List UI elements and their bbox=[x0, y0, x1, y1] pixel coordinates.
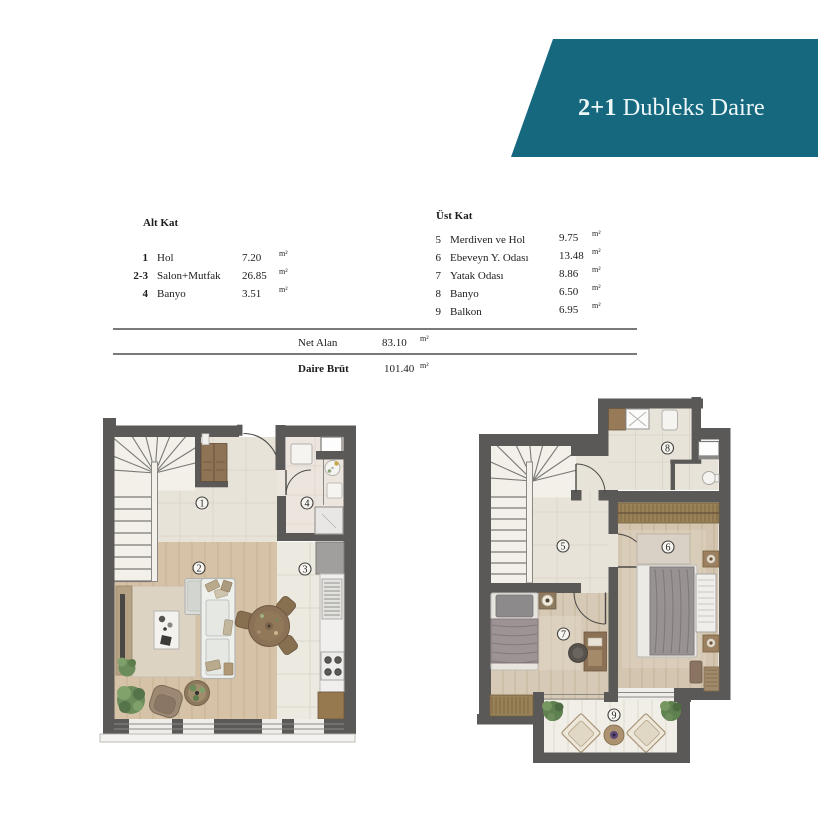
svg-text:1: 1 bbox=[200, 498, 205, 509]
svg-text:Üst Kat: Üst Kat bbox=[436, 209, 473, 222]
svg-text:5: 5 bbox=[436, 234, 442, 246]
svg-text:m²: m² bbox=[279, 267, 288, 276]
svg-text:m²: m² bbox=[592, 229, 601, 238]
svg-text:Daire Brüt: Daire Brüt bbox=[298, 363, 349, 375]
svg-text:Yatak Odası: Yatak Odası bbox=[450, 270, 504, 282]
svg-text:m²: m² bbox=[592, 301, 601, 310]
svg-text:8: 8 bbox=[436, 288, 442, 300]
svg-text:6: 6 bbox=[666, 542, 671, 553]
svg-text:3: 3 bbox=[303, 564, 308, 575]
svg-text:Banyo: Banyo bbox=[157, 288, 186, 300]
svg-text:m²: m² bbox=[592, 283, 601, 292]
svg-text:8.86: 8.86 bbox=[559, 268, 579, 280]
svg-text:Salon+Mutfak: Salon+Mutfak bbox=[157, 270, 221, 282]
svg-text:m²: m² bbox=[420, 361, 429, 370]
svg-text:Net Alan: Net Alan bbox=[298, 337, 338, 349]
svg-text:5: 5 bbox=[561, 541, 566, 552]
svg-text:6.95: 6.95 bbox=[559, 304, 579, 316]
svg-text:Balkon: Balkon bbox=[450, 306, 482, 318]
svg-text:Banyo: Banyo bbox=[450, 288, 479, 300]
svg-text:9: 9 bbox=[436, 306, 442, 318]
svg-text:7: 7 bbox=[436, 270, 442, 282]
svg-text:4: 4 bbox=[143, 288, 149, 300]
svg-text:m²: m² bbox=[279, 285, 288, 294]
svg-text:1: 1 bbox=[143, 252, 149, 264]
svg-text:m²: m² bbox=[420, 334, 429, 343]
svg-text:13.48: 13.48 bbox=[559, 250, 584, 262]
svg-text:26.85: 26.85 bbox=[242, 270, 267, 282]
svg-text:2-3: 2-3 bbox=[133, 270, 148, 282]
svg-text:Alt Kat: Alt Kat bbox=[143, 217, 178, 229]
svg-text:Ebeveyn Y. Odası: Ebeveyn Y. Odası bbox=[450, 252, 529, 264]
svg-text:83.10: 83.10 bbox=[382, 337, 407, 349]
svg-text:m²: m² bbox=[279, 249, 288, 258]
svg-text:6: 6 bbox=[436, 252, 442, 264]
svg-text:4: 4 bbox=[305, 498, 310, 509]
svg-text:Hol: Hol bbox=[157, 252, 174, 264]
svg-text:9: 9 bbox=[612, 710, 617, 721]
svg-text:m²: m² bbox=[592, 247, 601, 256]
svg-text:2: 2 bbox=[197, 563, 202, 574]
svg-text:6.50: 6.50 bbox=[559, 286, 579, 298]
svg-text:m²: m² bbox=[592, 265, 601, 274]
svg-text:3.51: 3.51 bbox=[242, 288, 261, 300]
svg-text:9.75: 9.75 bbox=[559, 232, 579, 244]
svg-text:7.20: 7.20 bbox=[242, 252, 262, 264]
svg-text:2+1 Dubleks Daire: 2+1 Dubleks Daire bbox=[578, 94, 765, 121]
svg-text:101.40: 101.40 bbox=[384, 363, 415, 375]
svg-text:8: 8 bbox=[665, 443, 670, 454]
svg-text:7: 7 bbox=[561, 629, 566, 640]
svg-text:Merdiven ve Hol: Merdiven ve Hol bbox=[450, 234, 525, 246]
